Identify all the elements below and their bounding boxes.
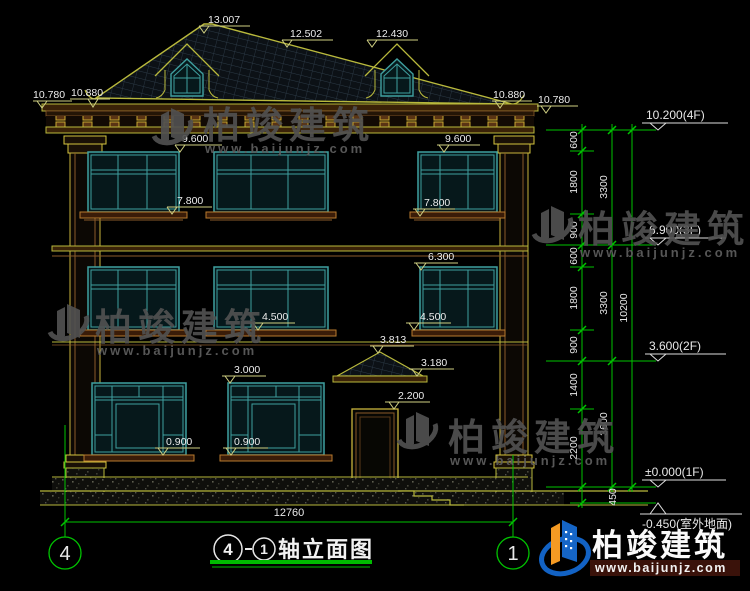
- level-label: ±0.000(1F): [645, 465, 704, 479]
- sills-1f: [84, 455, 332, 461]
- watermark-brand: 柏竣建筑: [448, 416, 620, 458]
- mark-label: 4.500: [420, 311, 446, 323]
- dim-value: 900: [568, 336, 580, 354]
- mark-label: 3.180: [421, 357, 447, 369]
- dim-value: 450: [607, 488, 619, 506]
- axis-bubble-left-label: 4: [59, 543, 70, 565]
- title-axis-from: 4: [223, 540, 233, 559]
- mark-label: 12.502: [290, 28, 322, 40]
- watermark-url: www.baijunjz.com: [449, 453, 610, 468]
- brand-logo: 柏竣建筑 www.baijunjz.com: [537, 520, 740, 580]
- dim-value: 10200: [618, 293, 630, 322]
- watermark-url: www.baijunjz.com: [96, 343, 257, 358]
- mark-label: 10.880: [493, 89, 525, 101]
- mark-label: 6.300: [428, 251, 454, 263]
- mark-label: 7.800: [424, 197, 450, 209]
- mark-label: 3.813: [380, 334, 406, 346]
- window-3f-middle: [214, 152, 328, 212]
- mark-label: 10.780: [33, 89, 65, 101]
- mark-f3-head-right: 9.600: [437, 133, 480, 152]
- mark-door-head: 2.200: [385, 390, 430, 409]
- overall-width-dim: 12760: [274, 507, 305, 519]
- dim-value: 1800: [568, 286, 580, 310]
- mark-label: 3.000: [234, 364, 260, 376]
- mark-label: 9.600: [445, 133, 471, 145]
- mark-eave-right-outer: 10.780: [537, 94, 578, 113]
- dim-value: 3300: [598, 291, 610, 315]
- watermark-2: 柏竣建筑 www.baijunjz.com: [534, 206, 750, 260]
- mark-f1-head: 3.000: [222, 364, 266, 383]
- mark-label: 0.900: [234, 436, 260, 448]
- level-4f: 10.200(4F): [642, 108, 728, 130]
- dormer-right: [365, 44, 429, 98]
- watermark-brand: 柏竣建筑: [95, 306, 267, 348]
- entrance-door: [352, 409, 398, 490]
- plinth-and-ground: [40, 477, 648, 505]
- logo-url-text: www.baijunjz.com: [594, 561, 727, 575]
- watermark-4: 柏竣建筑 www.baijunjz.com: [399, 412, 620, 468]
- dim-value: 1400: [568, 373, 580, 397]
- dim-value: 3300: [598, 175, 610, 199]
- watermark-brand: 柏竣建筑: [203, 104, 375, 146]
- cad-elevation-drawing: 13.007 12.502 12.430 10.780 10.880 10.88…: [0, 0, 750, 591]
- mark-dormer-right: 12.430: [367, 28, 418, 47]
- mark-label: 13.007: [208, 14, 240, 26]
- dim-value: 1800: [568, 170, 580, 194]
- drawing-canvas: 13.007 12.502 12.430 10.780 10.880 10.88…: [0, 0, 750, 591]
- mark-roof-mid: 12.502: [282, 28, 333, 47]
- watermark-url: www.baijunjz.com: [579, 245, 740, 260]
- title-axis-to: 1: [260, 541, 268, 557]
- level-outdoor: -0.450(室外地面): [640, 503, 742, 531]
- mark-label: 0.900: [166, 436, 192, 448]
- mark-label: 2.200: [398, 390, 424, 402]
- mark-canopy-ridge: 3.813: [370, 334, 414, 353]
- mark-label: 7.800: [177, 195, 203, 207]
- title-underline-thick: [210, 560, 372, 564]
- level-markers: 10.200(4F) 6.900(3F) 3.600(2F) ±0.000(1F…: [640, 108, 742, 531]
- level-label: 10.200(4F): [646, 108, 705, 122]
- mark-label: 10.780: [538, 94, 570, 106]
- level-2f: 3.600(2F): [645, 339, 726, 361]
- sills-3f: [80, 212, 505, 220]
- level-1f: ±0.000(1F): [642, 465, 726, 487]
- dim-value: 600: [568, 131, 580, 149]
- axis-bubble-right-label: 1: [507, 543, 518, 565]
- logo-building-left: [551, 523, 560, 565]
- mark-label: 10.880: [71, 87, 103, 99]
- watermark-logo-icon: [534, 206, 571, 242]
- logo-building-right: [562, 520, 577, 562]
- window-3f-left: [88, 152, 179, 212]
- drawing-title: 4 1 轴立面图: [210, 535, 374, 567]
- logo-brand-text: 柏竣建筑: [592, 528, 728, 563]
- watermark-brand: 柏竣建筑: [578, 208, 750, 250]
- watermark-logo-icon: [399, 412, 436, 448]
- title-text: 轴立面图: [278, 537, 374, 562]
- mark-label: 12.430: [376, 28, 408, 40]
- entrance-canopy: [333, 352, 427, 382]
- level-label: 3.600(2F): [649, 339, 701, 353]
- watermark-url: www.baijunjz.com: [204, 141, 365, 156]
